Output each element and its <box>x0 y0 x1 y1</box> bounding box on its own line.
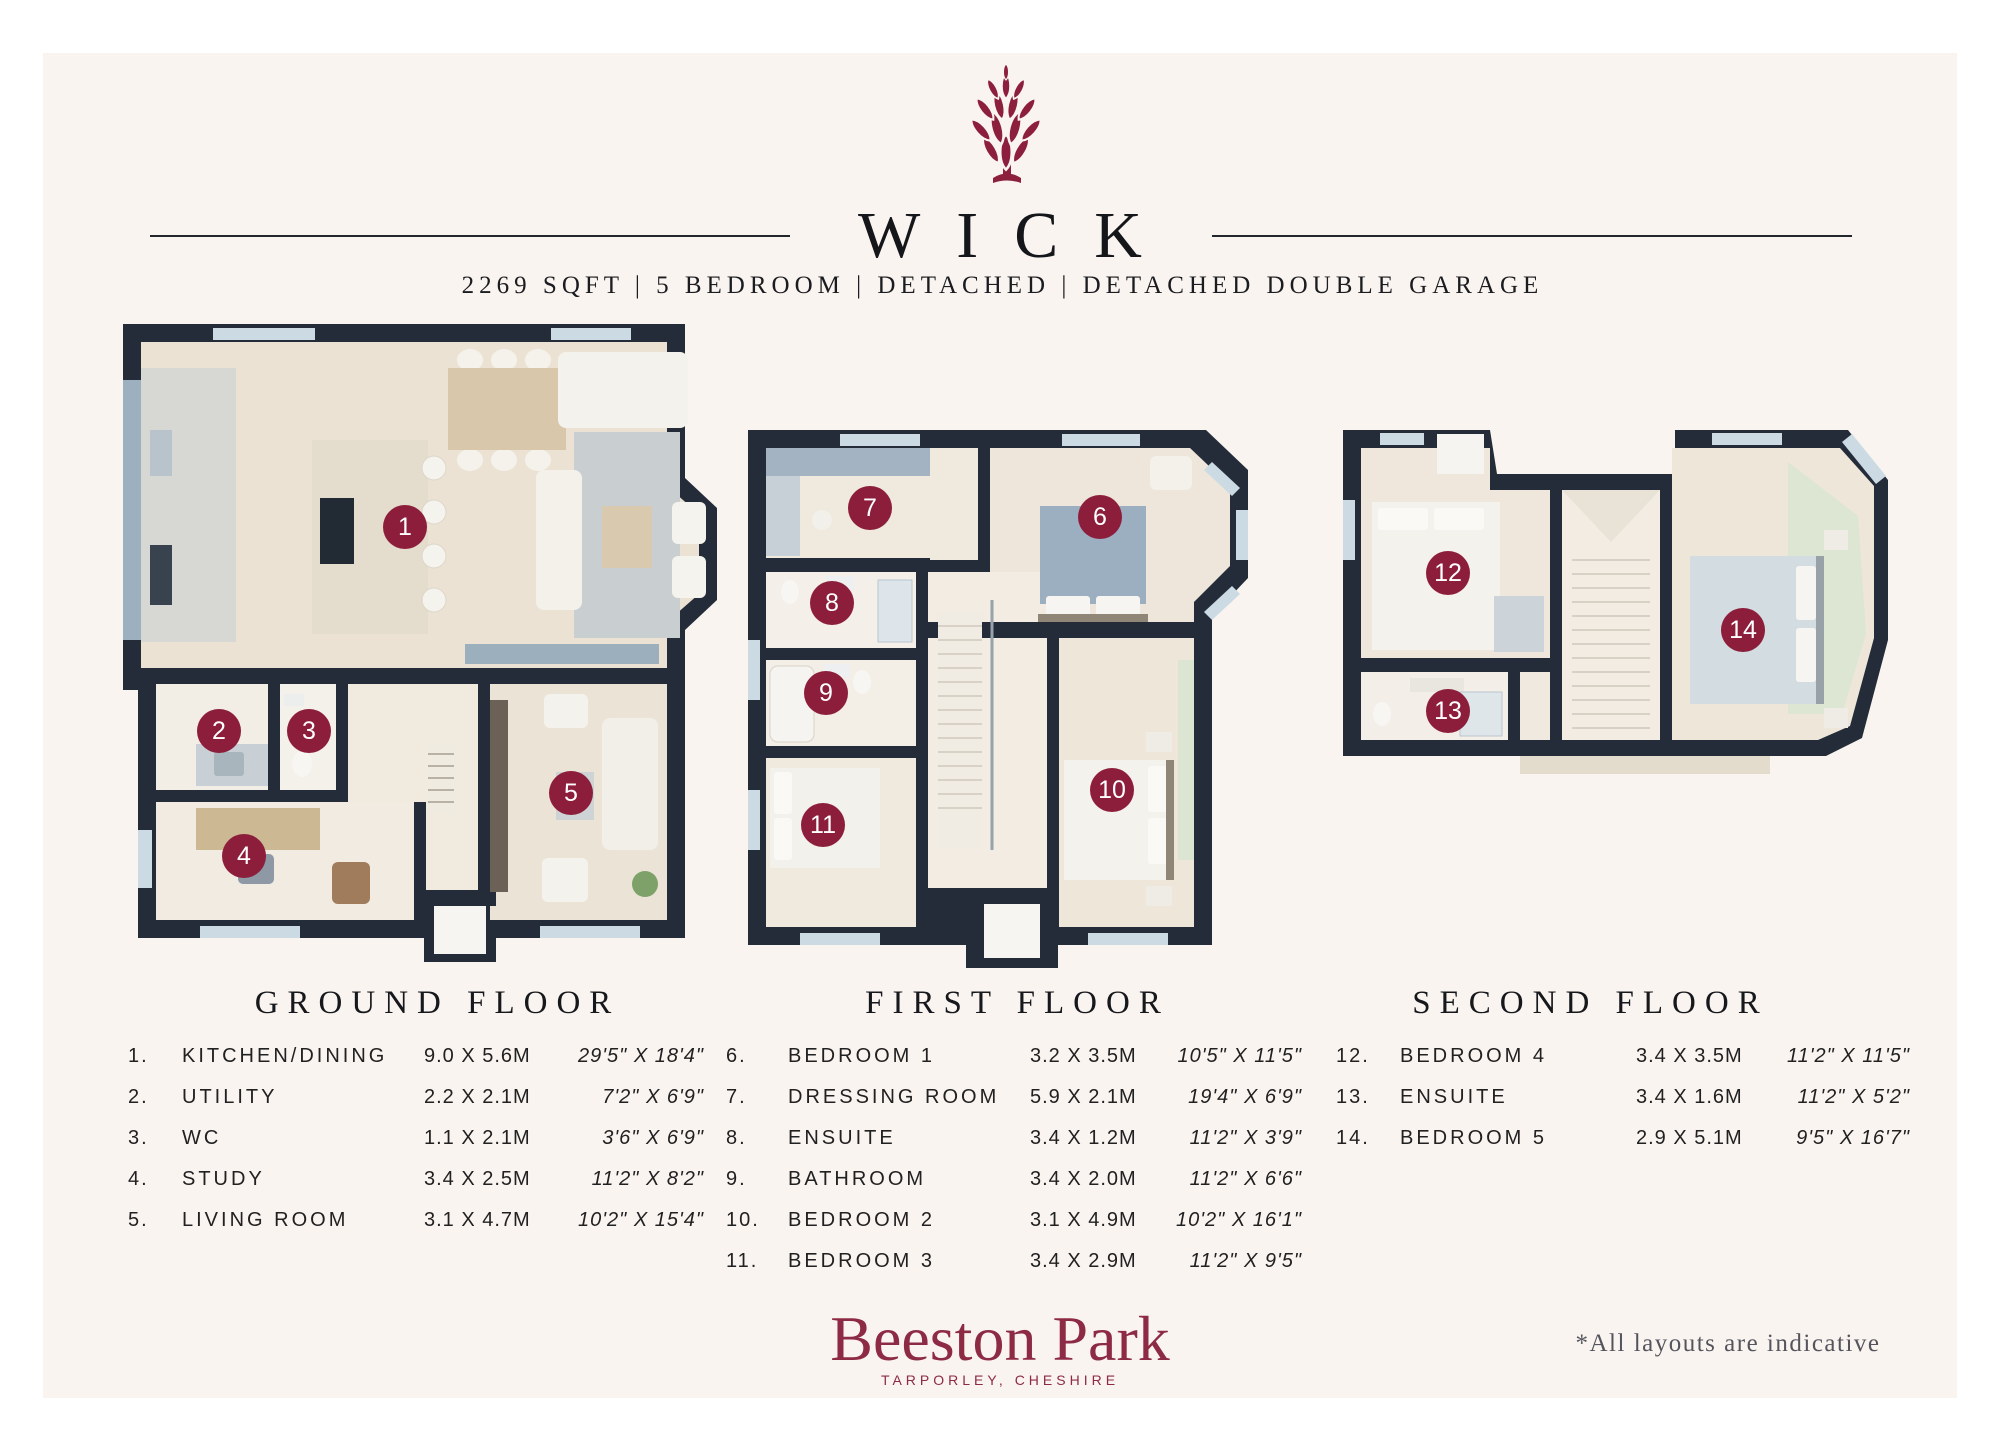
room-marker: 5 <box>549 771 593 815</box>
legend-room-imperial: 7'2" X 6'9" <box>548 1086 704 1109</box>
legend-row: 6. BEDROOM 1 3.2 X 3.5M 10'5" X 11'5" <box>726 1036 1302 1077</box>
legend-room-number: 8. <box>726 1127 788 1150</box>
property-specs: 2269 SQFT | 5 BEDROOM | DETACHED | DETAC… <box>0 272 2000 300</box>
legend-room-number: 1. <box>128 1045 182 1068</box>
legend-room-imperial: 9'5" X 16'7" <box>1754 1127 1910 1150</box>
ground-floor-drawing <box>108 318 730 978</box>
legend-room-imperial: 19'4" X 6'9" <box>1148 1086 1302 1109</box>
legend-row: 7. DRESSING ROOM 5.9 X 2.1M 19'4" X 6'9" <box>726 1077 1302 1118</box>
legend-room-metric: 5.9 X 2.1M <box>1030 1086 1148 1109</box>
legend-row: 11. BEDROOM 3 3.4 X 2.9M 11'2" X 9'5" <box>726 1241 1302 1282</box>
room-marker: 12 <box>1426 551 1470 595</box>
developer-location: TARPORLEY, CHESHIRE <box>881 1372 1119 1388</box>
legend-room-number: 9. <box>726 1168 788 1191</box>
legend-room-imperial: 11'2" X 5'2" <box>1754 1086 1910 1109</box>
legend-room-metric: 3.4 X 2.9M <box>1030 1250 1148 1273</box>
legend-room-metric: 3.4 X 3.5M <box>1636 1045 1754 1068</box>
legend-first-floor: 6. BEDROOM 1 3.2 X 3.5M 10'5" X 11'5" 7.… <box>726 1036 1302 1282</box>
legend-room-number: 6. <box>726 1045 788 1068</box>
legend-row: 1. KITCHEN/DINING 9.0 X 5.6M 29'5" X 18'… <box>128 1036 704 1077</box>
legend-room-name: DRESSING ROOM <box>788 1086 1030 1109</box>
brochure-page: WICK 2269 SQFT | 5 BEDROOM | DETACHED | … <box>0 0 2000 1441</box>
legend-room-metric: 3.4 X 1.2M <box>1030 1127 1148 1150</box>
legend-row: 2. UTILITY 2.2 X 2.1M 7'2" X 6'9" <box>128 1077 704 1118</box>
ground-floor-plan <box>108 318 730 978</box>
legend-room-metric: 3.4 X 2.0M <box>1030 1168 1148 1191</box>
legend-room-metric: 3.4 X 1.6M <box>1636 1086 1754 1109</box>
room-marker: 1 <box>383 505 427 549</box>
title-rule-left <box>150 235 790 237</box>
staircase <box>428 744 454 814</box>
legend-room-name: BEDROOM 4 <box>1400 1045 1636 1068</box>
legend-room-imperial: 10'5" X 11'5" <box>1148 1045 1302 1068</box>
legend-room-imperial: 11'2" X 11'5" <box>1754 1045 1910 1068</box>
legend-row: 5. LIVING ROOM 3.1 X 4.7M 10'2" X 15'4" <box>128 1200 704 1241</box>
first-floor-label: FIRST FLOOR <box>856 985 1170 1022</box>
legend-room-number: 5. <box>128 1209 182 1232</box>
legend-row: 9. BATHROOM 3.4 X 2.0M 11'2" X 6'6" <box>726 1159 1302 1200</box>
legend-room-number: 7. <box>726 1086 788 1109</box>
legend-row: 13. ENSUITE 3.4 X 1.6M 11'2" X 5'2" <box>1336 1077 1910 1118</box>
legend-room-imperial: 10'2" X 16'1" <box>1148 1209 1302 1232</box>
room-marker: 13 <box>1426 689 1470 733</box>
legend-room-imperial: 29'5" X 18'4" <box>548 1045 704 1068</box>
legend-room-metric: 3.1 X 4.7M <box>424 1209 548 1232</box>
room-marker: 8 <box>810 581 854 625</box>
legend-room-number: 12. <box>1336 1045 1400 1068</box>
legend-row: 10. BEDROOM 2 3.1 X 4.9M 10'2" X 16'1" <box>726 1200 1302 1241</box>
legend-room-imperial: 11'2" X 8'2" <box>548 1168 704 1191</box>
legend-row: 12. BEDROOM 4 3.4 X 3.5M 11'2" X 11'5" <box>1336 1036 1910 1077</box>
legend-room-name: UTILITY <box>182 1086 424 1109</box>
legend-room-number: 4. <box>128 1168 182 1191</box>
room-marker: 14 <box>1721 608 1765 652</box>
legend-room-metric: 3.2 X 3.5M <box>1030 1045 1148 1068</box>
legend-room-name: BEDROOM 2 <box>788 1209 1030 1232</box>
legend-room-metric: 3.1 X 4.9M <box>1030 1209 1148 1232</box>
room-marker: 2 <box>197 709 241 753</box>
legend-room-name: WC <box>182 1127 424 1150</box>
legend-room-imperial: 3'6" X 6'9" <box>548 1127 704 1150</box>
legend-room-name: BATHROOM <box>788 1168 1030 1191</box>
legend-room-name: KITCHEN/DINING <box>182 1045 424 1068</box>
room-marker: 11 <box>801 803 845 847</box>
room-marker: 9 <box>804 671 848 715</box>
legend-room-name: BEDROOM 5 <box>1400 1127 1636 1150</box>
legend-room-number: 11. <box>726 1250 788 1273</box>
legend-room-number: 14. <box>1336 1127 1400 1150</box>
room-marker: 4 <box>222 834 266 878</box>
legend-room-number: 2. <box>128 1086 182 1109</box>
legend-room-metric: 9.0 X 5.6M <box>424 1045 548 1068</box>
legend-row: 8. ENSUITE 3.4 X 1.2M 11'2" X 3'9" <box>726 1118 1302 1159</box>
legend-room-metric: 2.2 X 2.1M <box>424 1086 548 1109</box>
room-marker: 10 <box>1090 768 1134 812</box>
artichoke-logo-icon <box>963 64 1051 184</box>
room-marker: 3 <box>287 709 331 753</box>
legend-room-imperial: 10'2" X 15'4" <box>548 1209 704 1232</box>
legend-room-imperial: 11'2" X 9'5" <box>1148 1250 1302 1273</box>
room-marker: 7 <box>848 486 892 530</box>
legend-room-metric: 2.9 X 5.1M <box>1636 1127 1754 1150</box>
legend-second-floor: 12. BEDROOM 4 3.4 X 3.5M 11'2" X 11'5" 1… <box>1336 1036 1910 1159</box>
legend-row: 3. WC 1.1 X 2.1M 3'6" X 6'9" <box>128 1118 704 1159</box>
legend-row: 4. STUDY 3.4 X 2.5M 11'2" X 8'2" <box>128 1159 704 1200</box>
legend-row: 14. BEDROOM 5 2.9 X 5.1M 9'5" X 16'7" <box>1336 1118 1910 1159</box>
legend-room-name: LIVING ROOM <box>182 1209 424 1232</box>
second-floor-label: SECOND FLOOR <box>1403 985 1768 1022</box>
second-floor-drawing <box>1334 424 1906 786</box>
legend-room-number: 13. <box>1336 1086 1400 1109</box>
room-marker: 6 <box>1078 495 1122 539</box>
legend-ground-floor: 1. KITCHEN/DINING 9.0 X 5.6M 29'5" X 18'… <box>128 1036 704 1241</box>
legend-room-number: 3. <box>128 1127 182 1150</box>
second-floor-plan <box>1334 424 1906 786</box>
legend-room-name: STUDY <box>182 1168 424 1191</box>
developer-brand: Beeston Park <box>830 1302 1170 1376</box>
layouts-disclaimer: *All layouts are indicative <box>1575 1330 1880 1358</box>
legend-room-metric: 1.1 X 2.1M <box>424 1127 548 1150</box>
legend-room-imperial: 11'2" X 6'6" <box>1148 1168 1302 1191</box>
legend-room-metric: 3.4 X 2.5M <box>424 1168 548 1191</box>
ground-floor-label: GROUND FLOOR <box>246 985 621 1022</box>
legend-room-name: BEDROOM 3 <box>788 1250 1030 1273</box>
legend-room-number: 10. <box>726 1209 788 1232</box>
title-rule-right <box>1212 235 1852 237</box>
legend-room-name: ENSUITE <box>788 1127 1030 1150</box>
legend-room-name: ENSUITE <box>1400 1086 1636 1109</box>
legend-room-imperial: 11'2" X 3'9" <box>1148 1127 1302 1150</box>
legend-room-name: BEDROOM 1 <box>788 1045 1030 1068</box>
